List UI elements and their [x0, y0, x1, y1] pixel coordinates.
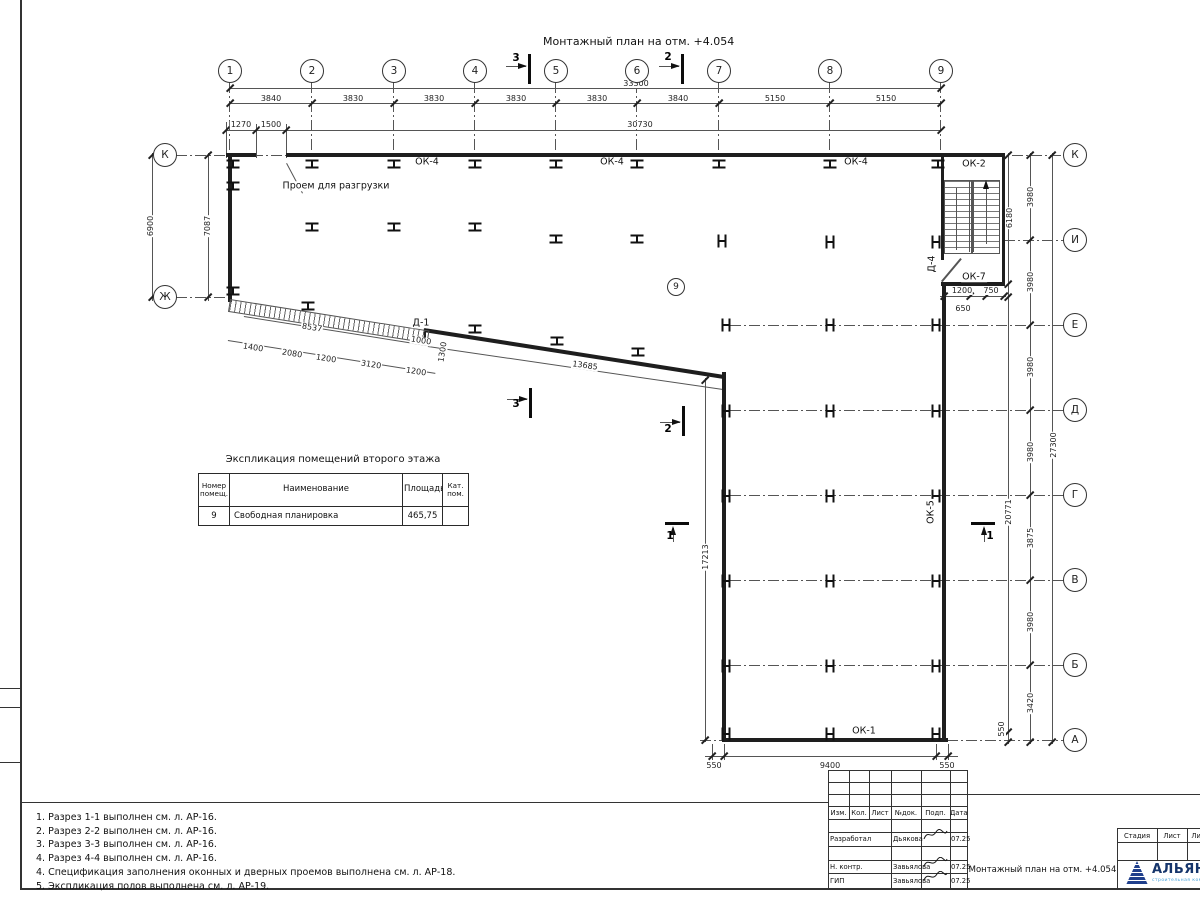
steel-column-icon — [932, 236, 941, 249]
note-line: 1. Разрез 1-1 выполнен см. л. АР-16. — [36, 811, 455, 825]
explication-title: Экспликация помещений второго этажа — [198, 454, 468, 465]
plan-line — [828, 888, 1200, 889]
steel-column-icon — [551, 337, 564, 346]
plan-line — [20, 802, 828, 803]
plan-line — [681, 54, 684, 84]
axis-circle: В — [1063, 568, 1087, 592]
dim-label: 750 — [982, 287, 999, 295]
plan-line — [529, 388, 532, 418]
note-line: 5. Экспликация полов выполнена см. л. АР… — [36, 880, 455, 894]
steel-column-icon — [631, 235, 644, 244]
axis-circle: Г — [1063, 483, 1087, 507]
section-label: 3 — [512, 53, 519, 64]
room-number: 9 — [199, 507, 230, 526]
dim-label: 17213 — [702, 543, 710, 570]
dim-label: 13685 — [571, 360, 599, 372]
dim-label: 3980 — [1027, 441, 1035, 463]
tb-role-gip: ГИП — [830, 878, 844, 885]
tb-col-kol: Кол. — [849, 810, 869, 817]
section-arrow-icon — [983, 180, 989, 189]
dim-label: 1200 — [951, 287, 973, 295]
steel-column-icon — [932, 575, 941, 588]
dim-label: 3840 — [667, 95, 689, 103]
plan-line — [940, 296, 1006, 297]
plan-line — [948, 744, 949, 760]
dim-label: 3840 — [260, 95, 282, 103]
section-label: 3 — [512, 399, 519, 410]
feature-label: ОК-7 — [961, 272, 987, 282]
plan-line — [228, 153, 232, 302]
plan-line — [230, 103, 941, 104]
col-category: Кат. пом. — [443, 474, 469, 507]
dim-tick — [937, 99, 945, 107]
signature-developer — [922, 828, 948, 842]
steel-column-icon — [713, 160, 726, 169]
feature-label: ОК-4 — [843, 157, 869, 167]
plan-line — [636, 82, 637, 156]
steel-column-icon — [826, 319, 835, 332]
feature-label: Д-1 — [412, 318, 431, 328]
steel-column-icon — [722, 728, 731, 741]
note-line: 2. Разрез 2-2 выполнен см. л. АР-16. — [36, 825, 455, 839]
steel-column-icon — [550, 235, 563, 244]
floor-plan-canvas: 3330038403830383038303830384051505150127… — [0, 0, 1200, 900]
steel-column-icon — [722, 575, 731, 588]
plan-line — [730, 665, 1066, 666]
steel-column-icon — [306, 223, 319, 232]
axis-circle: 3 — [382, 59, 406, 83]
steel-column-icon — [722, 660, 731, 673]
steel-column-icon — [932, 728, 941, 741]
dim-label: 3420 — [1027, 692, 1035, 714]
axis-circle: Д — [1063, 398, 1087, 422]
plan-line — [971, 522, 995, 525]
tb-date-developer: 07.25 — [951, 836, 970, 843]
plan-line — [828, 819, 968, 820]
steel-column-icon — [824, 160, 837, 169]
steel-column-icon — [826, 490, 835, 503]
plan-line — [423, 328, 724, 379]
dim-tick — [937, 84, 945, 92]
dim-label: 1200 — [404, 366, 427, 377]
plan-line — [724, 744, 725, 760]
steel-column-icon — [932, 160, 945, 169]
plan-line — [718, 82, 719, 156]
tb-col-list: Лист — [869, 810, 891, 817]
dim-label: 3830 — [342, 95, 364, 103]
dim-label: 3830 — [505, 95, 527, 103]
plan-line — [0, 707, 20, 708]
section-label: 2 — [664, 424, 671, 435]
signature-gip — [922, 871, 948, 883]
section-arrow-icon — [671, 63, 680, 69]
plan-line — [665, 522, 689, 525]
steel-column-icon — [718, 235, 727, 248]
plan-line — [956, 188, 957, 250]
plan-line — [0, 762, 20, 763]
plan-line — [20, 0, 22, 890]
plan-line — [828, 806, 968, 807]
plan-line — [528, 54, 531, 84]
axis-circle: Б — [1063, 653, 1087, 677]
dim-label: 1500 — [260, 121, 282, 129]
plan-line — [730, 580, 1066, 581]
room-category — [443, 507, 469, 526]
table-row: 9 Свободная планировка 465,75 — [199, 507, 469, 526]
steel-column-icon — [632, 348, 645, 357]
plan-line — [967, 794, 1200, 795]
plan-line — [828, 846, 968, 847]
axis-circle: 5 — [544, 59, 568, 83]
table-header-row: Номер помещ. Наименование Площадь Кат. п… — [199, 474, 469, 507]
tb-sheets: Лист — [1187, 833, 1200, 840]
dim-label: 30730 — [626, 121, 653, 129]
signature-ncontrol — [922, 857, 948, 869]
tb-role-ncontrol: Н. контр. — [830, 864, 863, 871]
axis-circle: 8 — [818, 59, 842, 83]
notes-list: 1. Разрез 1-1 выполнен см. л. АР-16.2. Р… — [36, 811, 455, 893]
feature-label: Д-4 — [927, 255, 937, 274]
axis-circle: 9 — [929, 59, 953, 83]
dim-label: 2080 — [280, 348, 303, 359]
plan-line — [1004, 240, 1066, 241]
plan-line — [393, 82, 394, 156]
col-number: Номер помещ. — [199, 474, 230, 507]
plan-line — [226, 130, 941, 131]
tb-role-developer: Разработал — [830, 836, 871, 843]
note-line: 4. Спецификация заполнения оконных и две… — [36, 866, 455, 880]
plan-line — [944, 180, 999, 181]
feature-label: ОК-4 — [414, 157, 440, 167]
tb-col-podp: Подп. — [921, 810, 950, 817]
col-area: Площадь — [403, 474, 443, 507]
plan-line — [722, 738, 948, 742]
room-area: 465,75 — [403, 507, 443, 526]
plan-line — [730, 410, 1066, 411]
axis-circle: Ж — [153, 285, 177, 309]
explication-table: Экспликация помещений второго этажа Номе… — [198, 454, 468, 526]
section-label: 1 — [986, 531, 993, 542]
steel-column-icon — [932, 660, 941, 673]
dim-label: 8537 — [300, 322, 323, 333]
dim-label: 3980 — [1027, 356, 1035, 378]
axis-circle: 7 — [707, 59, 731, 83]
axis-circle: К — [1063, 143, 1087, 167]
note-line: 3. Разрез 3-3 выполнен см. л. АР-16. — [36, 838, 455, 852]
plan-line — [730, 495, 1066, 496]
steel-column-icon — [722, 405, 731, 418]
note-line: 4. Разрез 4-4 выполнен см. л. АР-16. — [36, 852, 455, 866]
plan-line — [311, 82, 312, 156]
plan-line — [940, 82, 941, 156]
steel-column-icon — [932, 319, 941, 332]
dim-label: 3830 — [423, 95, 445, 103]
steel-column-icon — [388, 160, 401, 169]
dim-label: 1200 — [314, 353, 337, 364]
section-arrow-icon — [672, 419, 681, 425]
steel-column-icon — [469, 160, 482, 169]
section-label: 2 — [664, 52, 671, 63]
feature-label: ОК-4 — [599, 157, 625, 167]
plan-line — [973, 180, 974, 252]
steel-column-icon — [826, 405, 835, 418]
steel-column-icon — [227, 182, 240, 191]
steel-column-icon — [469, 223, 482, 232]
feature-label: ОК-1 — [851, 726, 877, 736]
plan-line — [829, 82, 830, 156]
plan-title: Монтажный план на отм. +4.054 — [543, 35, 734, 48]
dim-label: 7087 — [204, 215, 212, 237]
dim-label: 3120 — [359, 359, 382, 370]
plan-line — [942, 284, 946, 742]
steel-column-icon — [722, 319, 731, 332]
section-arrow-icon — [519, 396, 528, 402]
axis-circle: А — [1063, 728, 1087, 752]
axis-circle: Е — [1063, 313, 1087, 337]
dim-label: 1000 — [409, 335, 432, 346]
dim-label: 3875 — [1027, 527, 1035, 549]
alliance-logo-tagline: строительная компания — [1152, 878, 1200, 883]
steel-column-icon — [302, 302, 315, 311]
feature-label: Проем для разгрузки — [282, 181, 391, 191]
plan-line — [941, 258, 961, 282]
plan-line — [936, 744, 937, 760]
steel-column-icon — [469, 325, 482, 334]
plan-line — [986, 186, 987, 244]
steel-column-icon — [932, 405, 941, 418]
tb-col-data: Дата — [950, 810, 967, 817]
plan-line — [891, 770, 892, 888]
plan-line — [722, 372, 726, 742]
steel-column-icon — [227, 287, 240, 296]
plan-line — [969, 180, 970, 252]
alliance-logo-name: АЛЬЯНС — [1152, 862, 1200, 877]
steel-column-icon — [631, 160, 644, 169]
plan-line — [682, 406, 685, 436]
dim-label: 3980 — [1027, 271, 1035, 293]
tb-date-gip: 07.25 — [951, 878, 970, 885]
tb-stage: Стадия — [1117, 833, 1157, 840]
plan-line — [1117, 860, 1200, 861]
plan-line — [705, 756, 958, 757]
dim-label: 6900 — [147, 215, 155, 237]
steel-column-icon — [306, 160, 319, 169]
plan-line — [229, 82, 230, 156]
plan-line — [1008, 153, 1009, 744]
plan-line — [730, 325, 1066, 326]
dim-label: 20771 — [1005, 498, 1013, 525]
dim-label: 3980 — [1027, 186, 1035, 208]
room-name: Свободная планировка — [230, 507, 403, 526]
feature-label: ОК-5 — [926, 499, 936, 525]
col-name: Наименование — [230, 474, 403, 507]
dim-label: 1300 — [437, 340, 448, 363]
plan-line — [176, 297, 228, 298]
plan-line — [474, 82, 475, 156]
dim-label: 9400 — [819, 762, 841, 770]
plan-line — [286, 153, 1005, 157]
dim-label: 27300 — [1050, 431, 1058, 458]
axis-circle: 1 — [218, 59, 242, 83]
dim-label: 550 — [998, 720, 1006, 737]
room-number-circle: 9 — [667, 278, 685, 296]
tb-sheet: Лист — [1157, 833, 1187, 840]
axis-circle: К — [153, 143, 177, 167]
dim-label: 3980 — [1027, 611, 1035, 633]
axis-circle: И — [1063, 228, 1087, 252]
tb-name-developer: Дьякова — [893, 836, 923, 843]
axis-circle: 4 — [463, 59, 487, 83]
steel-column-icon — [826, 575, 835, 588]
section-label: 1 — [666, 531, 673, 542]
tb-col-izm: Изм. — [828, 810, 849, 817]
plan-line — [828, 782, 968, 783]
axis-circle: 2 — [300, 59, 324, 83]
steel-column-icon — [388, 223, 401, 232]
dim-label: 5150 — [764, 95, 786, 103]
steel-column-icon — [550, 160, 563, 169]
plan-line — [228, 299, 430, 343]
dim-tick — [937, 126, 945, 134]
tb-col-doc: №док. — [891, 810, 921, 817]
dim-label: 1400 — [241, 342, 264, 353]
steel-column-icon — [722, 490, 731, 503]
feature-label: ОК-2 — [961, 159, 987, 169]
section-arrow-icon — [518, 63, 527, 69]
steel-column-icon — [826, 660, 835, 673]
plan-line — [828, 794, 968, 795]
plan-line — [230, 88, 941, 89]
drawing-sheet: { "plan": { "title": "Монтажный план на … — [0, 0, 1200, 900]
plan-line — [944, 180, 972, 254]
dim-label: 3830 — [586, 95, 608, 103]
plan-line — [0, 688, 20, 689]
dim-label: 6180 — [1006, 207, 1014, 229]
dim-label: 1270 — [230, 121, 252, 129]
dim-label: 650 — [954, 305, 971, 313]
plan-line — [555, 82, 556, 156]
dim-label: 5150 — [875, 95, 897, 103]
plan-line — [712, 744, 713, 760]
dim-label: 550 — [705, 762, 722, 770]
axis-circle: 6 — [625, 59, 649, 83]
dim-label: 550 — [938, 762, 955, 770]
tb-doc-title: Монтажный план на отм. +4.054 — [968, 866, 1117, 875]
steel-column-icon — [826, 728, 835, 741]
steel-column-icon — [826, 236, 835, 249]
steel-column-icon — [227, 160, 240, 169]
plan-line — [828, 770, 829, 888]
